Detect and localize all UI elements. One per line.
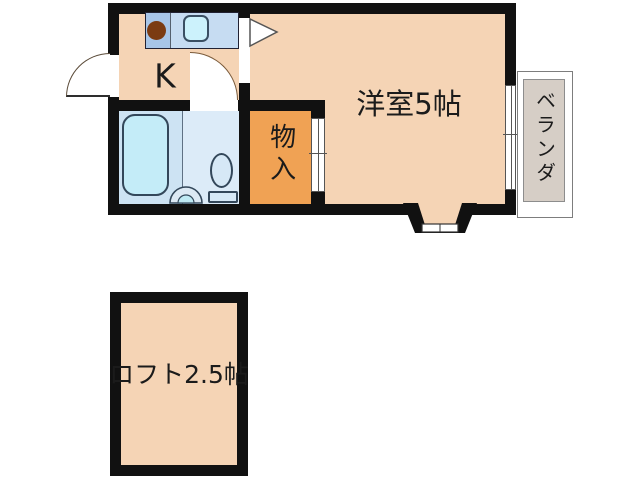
bay-window bbox=[399, 203, 481, 235]
closet-label: 物入 bbox=[266, 123, 293, 187]
window-handle-tick bbox=[503, 134, 518, 135]
window-glazing-line bbox=[511, 86, 512, 189]
bathtub bbox=[122, 114, 169, 196]
kitchen-mainroom-door-triangle bbox=[248, 15, 280, 49]
kitchen-label: K bbox=[154, 60, 176, 95]
loft-label: ロフト2.5帖 bbox=[109, 362, 249, 388]
wash-basin bbox=[168, 184, 206, 204]
toilet-bowl bbox=[210, 153, 233, 188]
entrance-door-swing bbox=[66, 53, 110, 97]
window-to-veranda bbox=[505, 85, 516, 190]
veranda-label: ベランダ bbox=[534, 90, 555, 186]
closet-door-handle-tick bbox=[309, 153, 327, 154]
floorplan-canvas: K 洋室5帖 物入 ベランダ ロフト2.5帖 bbox=[0, 0, 640, 480]
main-room-label: 洋室5帖 bbox=[356, 89, 461, 119]
closet-door bbox=[311, 118, 325, 192]
closet-door-line bbox=[318, 119, 319, 191]
stove-burner-icon bbox=[147, 21, 166, 40]
toilet-tank bbox=[208, 191, 238, 203]
kitchen-bathroom-door-opening bbox=[190, 100, 238, 111]
kitchen-sink bbox=[183, 15, 209, 42]
